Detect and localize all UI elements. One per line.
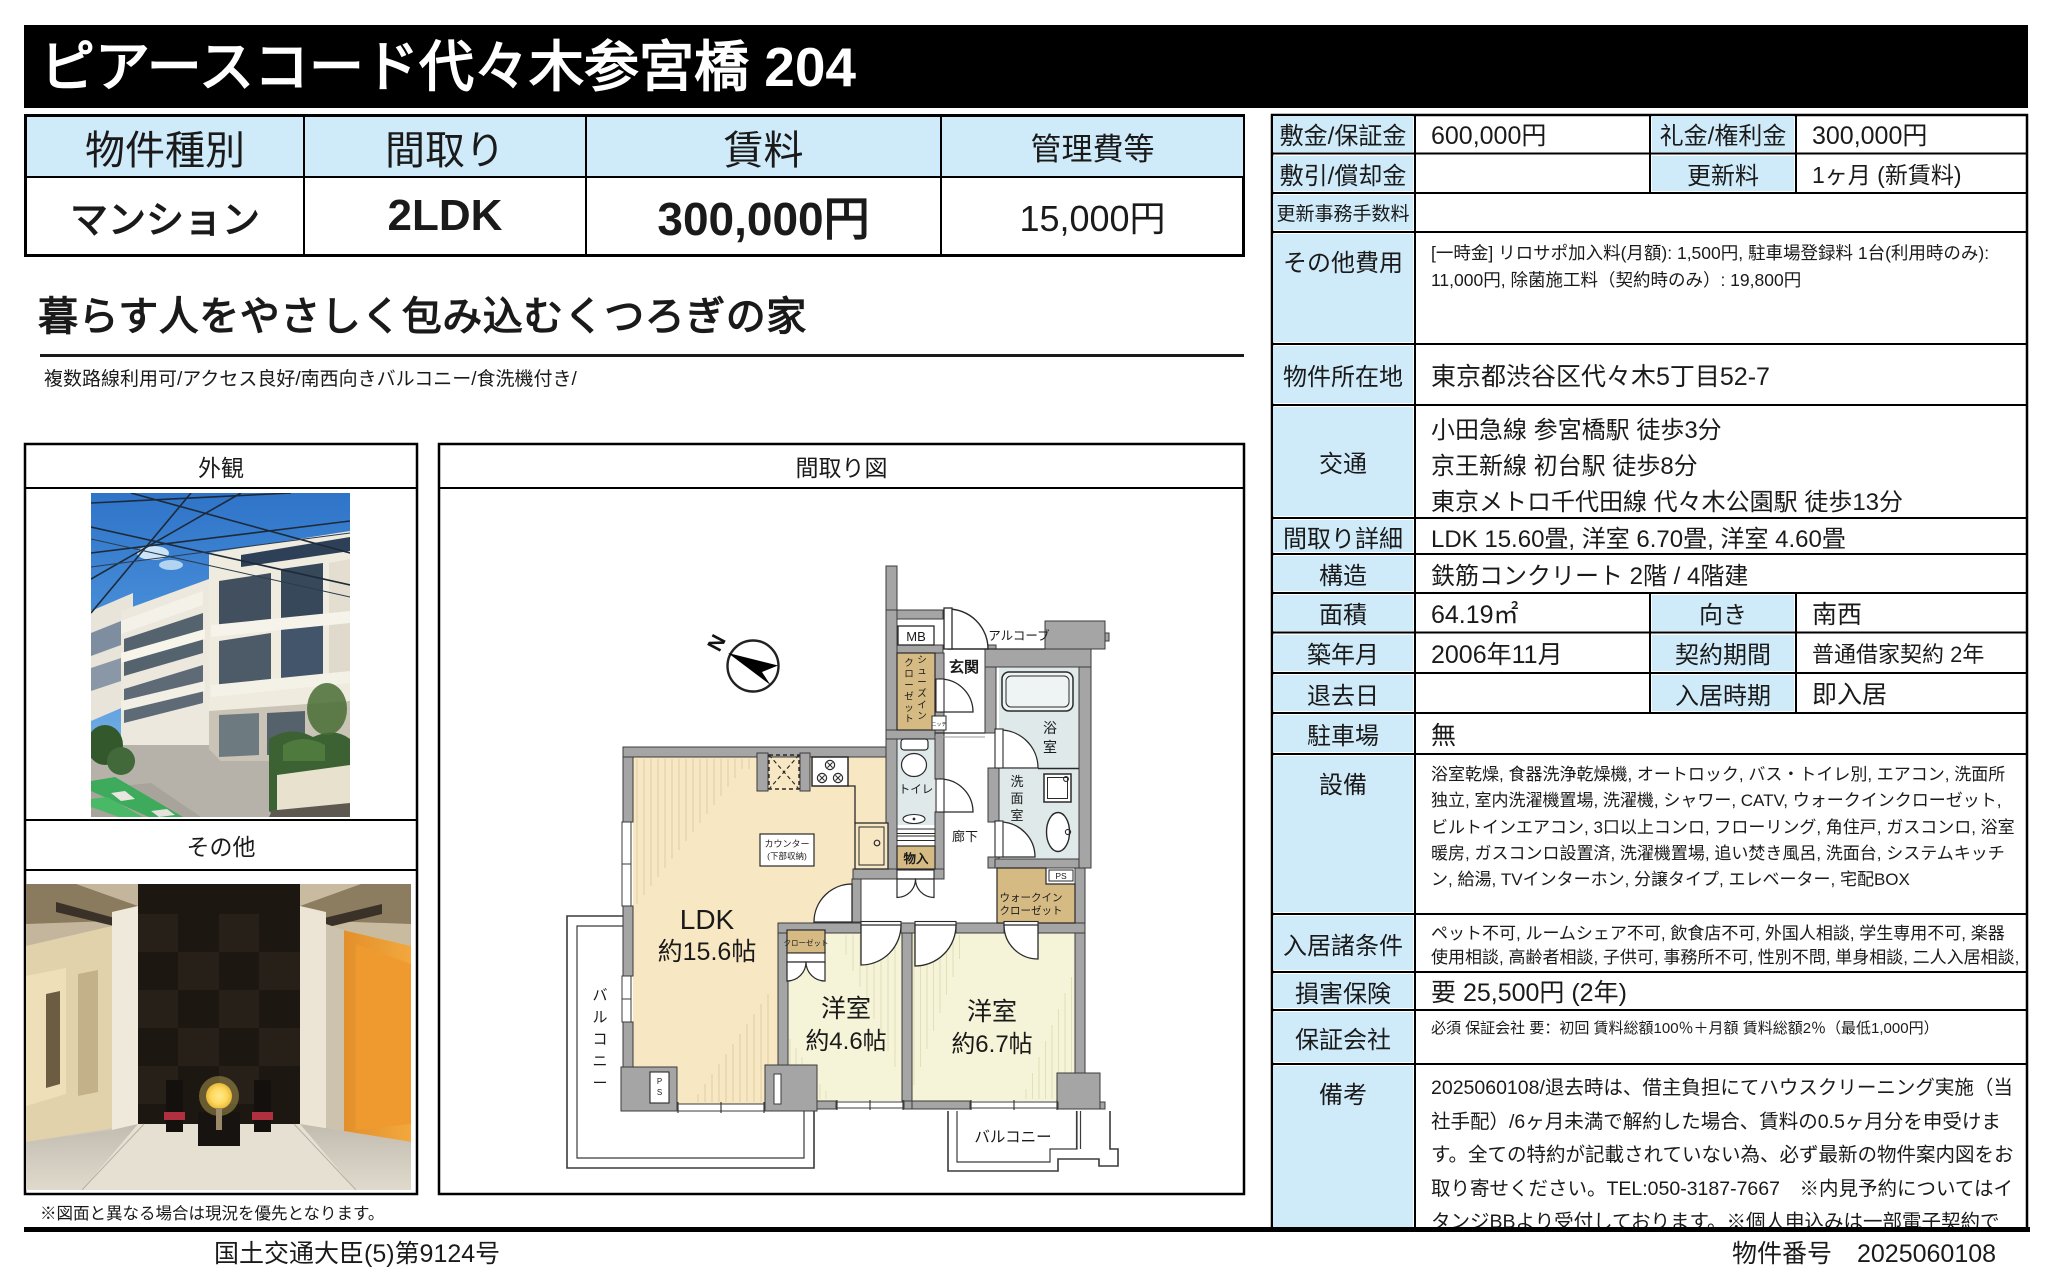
svg-text:ゼ: ゼ bbox=[904, 691, 914, 703]
svg-text:N: N bbox=[703, 631, 730, 655]
svg-text:ル: ル bbox=[592, 1009, 607, 1026]
svg-text:S: S bbox=[657, 1088, 662, 1097]
svg-text:トイレ: トイレ bbox=[899, 784, 934, 796]
svg-text:イ: イ bbox=[917, 700, 927, 711]
svg-text:MB: MB bbox=[906, 629, 926, 644]
svg-text:約15.6帖: 約15.6帖 bbox=[658, 938, 757, 966]
svg-text:(下部収納): (下部収納) bbox=[767, 851, 807, 861]
svg-text:約6.7帖: 約6.7帖 bbox=[951, 1031, 1032, 1058]
svg-text:バ: バ bbox=[592, 987, 607, 1004]
svg-text:コ: コ bbox=[592, 1031, 607, 1048]
svg-text:ト: ト bbox=[904, 714, 914, 725]
svg-text:ッ: ッ bbox=[904, 703, 914, 714]
svg-text:ウォークイン: ウォークイン bbox=[1000, 892, 1063, 904]
svg-text:ク: ク bbox=[904, 658, 914, 669]
svg-text:ー: ー bbox=[917, 677, 927, 688]
svg-text:ロ: ロ bbox=[904, 669, 914, 680]
svg-text:ニッチ: ニッチ bbox=[931, 722, 946, 728]
svg-text:室: 室 bbox=[1043, 739, 1057, 755]
svg-text:PS: PS bbox=[1055, 871, 1067, 881]
svg-text:バルコニー: バルコニー bbox=[974, 1129, 1051, 1146]
svg-text:シ: シ bbox=[917, 655, 927, 666]
svg-text:ニ: ニ bbox=[592, 1053, 607, 1070]
svg-text:面: 面 bbox=[1010, 791, 1023, 806]
svg-text:ー: ー bbox=[904, 680, 914, 691]
svg-text:カウンター: カウンター bbox=[764, 839, 809, 849]
svg-text:ー: ー bbox=[592, 1075, 607, 1092]
svg-text:洗: 洗 bbox=[1010, 774, 1023, 789]
svg-text:室: 室 bbox=[1010, 808, 1023, 823]
svg-text:P: P bbox=[657, 1077, 662, 1086]
svg-text:ュ: ュ bbox=[917, 666, 927, 677]
svg-text:浴: 浴 bbox=[1043, 720, 1057, 736]
svg-text:洋室: 洋室 bbox=[821, 995, 871, 1023]
svg-text:LDK: LDK bbox=[680, 904, 735, 935]
svg-text:洋室: 洋室 bbox=[967, 998, 1017, 1026]
svg-text:アルコーブ: アルコーブ bbox=[988, 628, 1050, 643]
svg-text:廊下: 廊下 bbox=[952, 829, 978, 844]
svg-text:玄関: 玄関 bbox=[949, 658, 979, 676]
svg-text:ン: ン bbox=[917, 711, 927, 722]
svg-text:クローゼット: クローゼット bbox=[784, 938, 829, 948]
svg-text:クローゼット: クローゼット bbox=[1000, 905, 1063, 917]
svg-text:ズ: ズ bbox=[917, 688, 927, 700]
svg-text:物入: 物入 bbox=[903, 851, 929, 866]
svg-text:約4.6帖: 約4.6帖 bbox=[805, 1028, 886, 1055]
